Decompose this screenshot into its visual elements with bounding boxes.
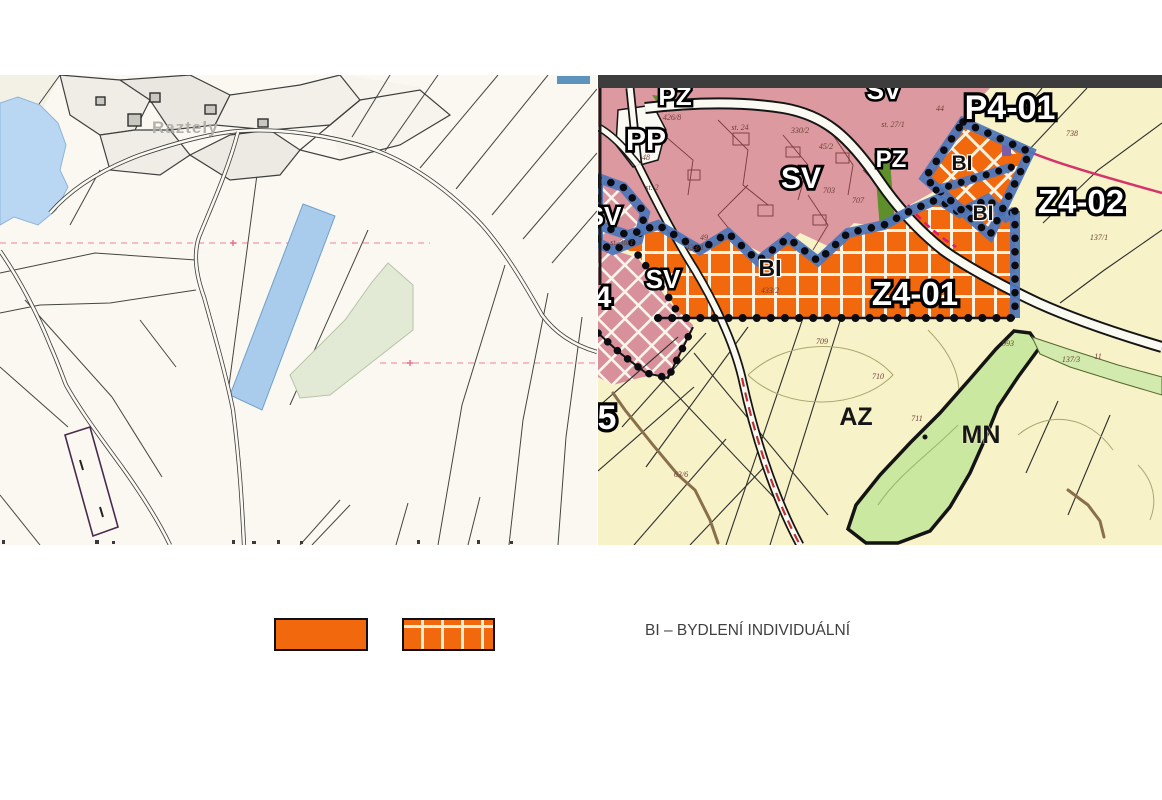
parcel-number: 45/2 — [819, 142, 833, 151]
parcel-number: 433/2 — [761, 286, 779, 295]
zone-label-mn: MN — [962, 421, 1001, 449]
parcel-number: st. 27/1 — [881, 120, 905, 129]
parcel-number: 426/8 — [663, 113, 681, 122]
zone-label-code-5: 5 — [598, 399, 616, 437]
zone-label-bi-main: BI — [759, 255, 782, 281]
zone-label-sv-left-edge: SV — [598, 201, 622, 231]
zone-label-z4-02: Z4-02 — [1038, 183, 1124, 220]
parcel-number: 137/3 — [1062, 355, 1080, 364]
parcel-number: 711 — [911, 414, 922, 423]
zoning-map-drawing: PZ SV P4-01 PP SV PZ Z4-02 SV SV Z4-01 4… — [598, 75, 1162, 545]
zone-label-bi-lower: BI — [973, 202, 994, 225]
parcel-number: 48 — [642, 153, 650, 162]
parcel-number: 44 — [936, 104, 944, 113]
parcel-number: 703 — [823, 186, 835, 195]
parcel-number: st. 2 — [645, 183, 658, 192]
parcel-number: 707 — [852, 196, 865, 205]
mn-point-symbol — [923, 435, 928, 440]
parcel-number: 433/1 — [686, 243, 704, 252]
zone-label-z4-01: Z4-01 — [872, 275, 958, 312]
parcel-number: 330/2 — [790, 126, 809, 135]
zone-label-az: AZ — [839, 403, 872, 431]
legend-label: BI – BYDLENÍ INDIVIDUÁLNÍ — [645, 622, 850, 640]
parcel-number: 993 — [1002, 339, 1014, 348]
surveyed-parcel-outline — [65, 427, 118, 536]
village-name-label: Raztely — [152, 118, 219, 137]
legend-swatch-bi-solid — [274, 618, 368, 651]
zone-label-pz-mid: PZ — [876, 146, 907, 173]
parcel-number: 738 — [1066, 129, 1078, 138]
parcel-number: 63/6 — [674, 470, 688, 479]
cadastral-map-panel: Raztely — [0, 75, 597, 545]
parcel-number: st. 38/1 — [610, 238, 634, 247]
parcel-number: 709 — [816, 337, 828, 346]
parcel-number: 137/1 — [1090, 233, 1108, 242]
parcel-number: st. 24 — [731, 123, 748, 132]
roads — [0, 130, 597, 545]
zone-label-code-4: 4 — [598, 281, 612, 314]
parcel-number: 11 — [1094, 352, 1101, 361]
parcel-number: 49 — [700, 233, 708, 242]
zoning-map-panel: PZ SV P4-01 PP SV PZ Z4-02 SV SV Z4-01 4… — [598, 75, 1162, 545]
zone-label-bi-upper: BI — [952, 152, 973, 175]
clipped-blue-bar — [557, 76, 590, 84]
zone-label-sv-lower: SV — [646, 264, 681, 294]
zone-label-sv-main: SV — [781, 162, 821, 195]
zone-mn-green — [848, 331, 1040, 543]
zone-label-p4-01: P4-01 — [965, 89, 1056, 127]
page: Raztely — [0, 0, 1162, 800]
clipped-bottom-text — [2, 540, 513, 544]
cadastral-map-drawing: Raztely — [0, 75, 597, 545]
viewer-dark-bar — [598, 75, 1162, 88]
legend-swatch-bi-hatched — [402, 618, 495, 651]
parcel-number: 710 — [872, 372, 884, 381]
